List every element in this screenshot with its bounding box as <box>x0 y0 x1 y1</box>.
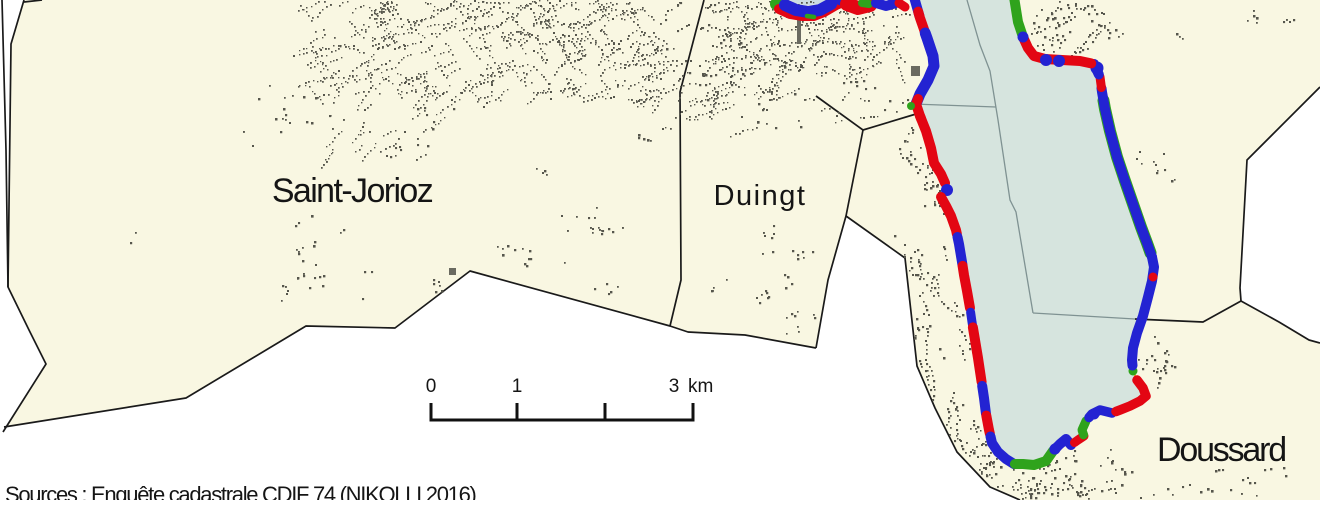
svg-text:Doussard: Doussard <box>1157 431 1285 469</box>
svg-text:Sources : Enquête cadastrale C: Sources : Enquête cadastrale CDIF 74 (NI… <box>5 482 476 500</box>
svg-text:3: 3 <box>669 376 680 397</box>
svg-text:0: 0 <box>426 376 437 397</box>
svg-text:Duingt: Duingt <box>714 180 807 212</box>
svg-text:1: 1 <box>512 376 523 397</box>
svg-text:km: km <box>688 376 713 397</box>
svg-text:Saint-Jorioz: Saint-Jorioz <box>272 172 433 210</box>
